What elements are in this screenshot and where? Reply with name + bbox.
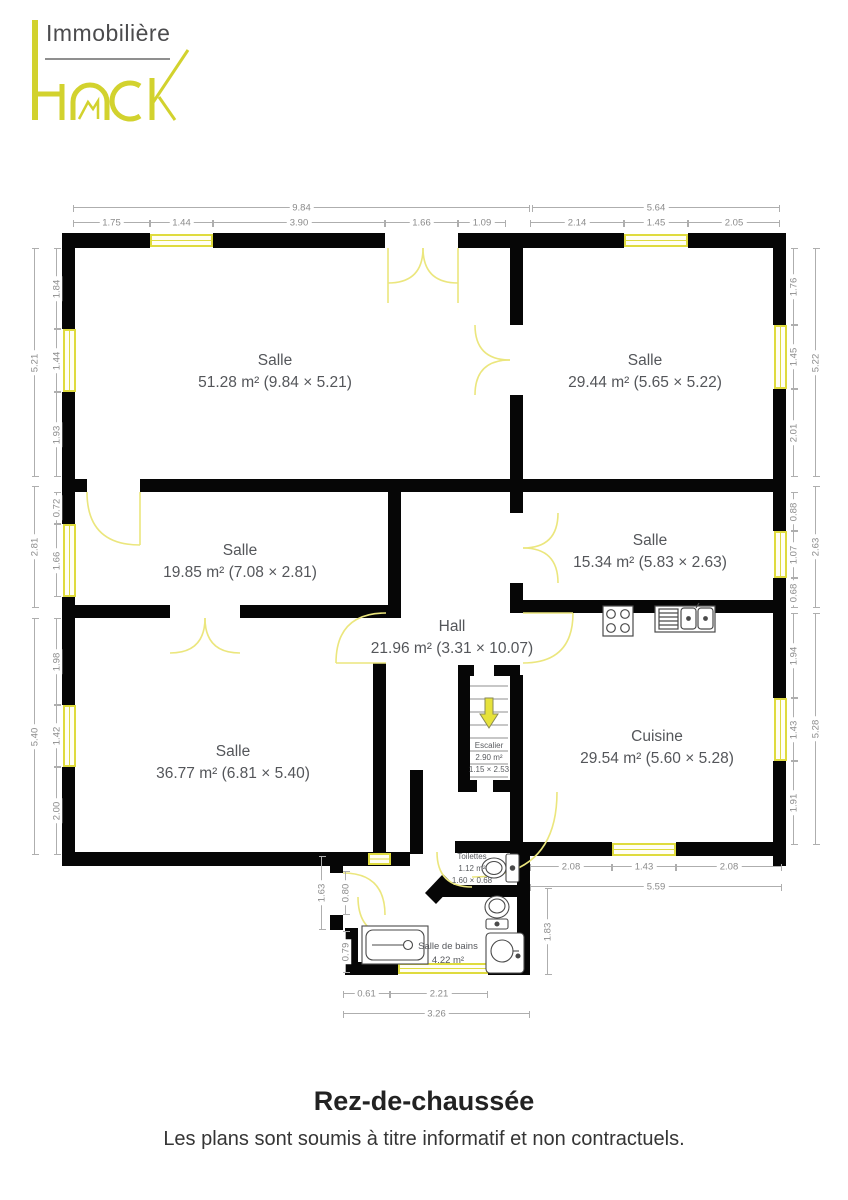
wall-segment: [62, 605, 170, 618]
room-size: 1.60 × 0.68: [452, 876, 492, 885]
window: [774, 698, 787, 761]
room-name: Salle: [216, 743, 250, 760]
dimension: 1.75: [73, 222, 150, 223]
room-label-escalier: Escalier 2.90 m² 1.15 × 2.53: [469, 740, 509, 776]
room-name: Salle: [633, 532, 667, 549]
wall-segment: [62, 767, 75, 866]
room-label-salle5: Salle 36.77 m² (6.81 × 5.40): [156, 741, 310, 786]
room-details: 15.34 m² (5.83 × 2.63): [573, 554, 727, 571]
dimension: 5.40: [34, 618, 35, 855]
wall-segment: [62, 597, 75, 618]
room-details: 19.85 m² (7.08 × 2.81): [163, 564, 317, 581]
window: [774, 531, 787, 578]
window: [624, 234, 688, 247]
wall-segment: [373, 663, 386, 853]
dimension: 1.45: [624, 222, 688, 223]
wall-segment: [388, 479, 401, 618]
dimension: 1.45: [793, 325, 794, 389]
room-label-salle2: Salle 29.44 m² (5.65 × 5.22): [568, 350, 722, 395]
toilet-icon: [485, 896, 509, 929]
dimension: 1.43: [793, 698, 794, 761]
dimension: 1.76: [793, 248, 794, 325]
wall-segment: [676, 842, 786, 856]
room-details: 29.44 m² (5.65 × 5.22): [568, 374, 722, 391]
dimension: 1.07: [793, 531, 794, 578]
dimension: 2.01: [793, 389, 794, 477]
wall-segment: [410, 770, 423, 854]
room-name: Salle: [258, 352, 292, 369]
dimension: 2.14: [530, 222, 624, 223]
dimension: 3.26: [343, 1013, 530, 1014]
dimension: 1.44: [150, 222, 213, 223]
dimension: 2.81: [34, 486, 35, 608]
room-label-cuisine: Cuisine 29.54 m² (5.60 × 5.28): [580, 726, 734, 771]
window: [368, 853, 391, 865]
room-area: 1.12 m²: [458, 864, 485, 873]
room-details: 21.96 m² (3.31 × 10.07): [371, 640, 533, 657]
wall-segment: [330, 852, 343, 873]
dimension: 2.21: [390, 993, 488, 994]
dimension: 1.43: [612, 866, 676, 867]
room-name: Toilettes: [457, 852, 486, 861]
room-name: Cuisine: [631, 728, 683, 745]
wall-segment: [510, 600, 786, 613]
dimension: 2.08: [530, 866, 612, 867]
dimension: 5.64: [532, 207, 780, 208]
window: [63, 329, 76, 392]
wall-segment: [773, 233, 786, 325]
plan-disclaimer: Les plans sont soumis à titre informatif…: [0, 1128, 848, 1151]
dimension: 5.21: [34, 248, 35, 477]
dimension: 9.84: [73, 207, 530, 208]
floor-plan-page: Immobilière: [0, 0, 848, 1200]
wall-segment: [773, 492, 786, 531]
dimension: 2.05: [688, 222, 780, 223]
dimension: 1.91: [793, 761, 794, 845]
plan-title: Rez-de-chaussée: [0, 1086, 848, 1117]
wall-segment: [62, 852, 410, 866]
wall-segment: [517, 852, 530, 975]
room-area: 4.22 m²: [432, 955, 464, 966]
dimension: 5.28: [815, 613, 816, 845]
wall-segment: [510, 675, 523, 852]
window: [63, 705, 76, 767]
dimension: 0.68: [793, 578, 794, 608]
wall-segment: [62, 618, 75, 705]
dimension: 2.08: [676, 866, 782, 867]
room-details: 51.28 m² (9.84 × 5.21): [198, 374, 352, 391]
dimension: 3.90: [213, 222, 385, 223]
wall-segment: [62, 233, 75, 329]
room-label-salle-de-bains: Salle de bains 4.22 m²: [418, 940, 478, 968]
wall-segment: [773, 389, 786, 492]
wall-segment: [62, 392, 75, 492]
wall-segment: [510, 583, 523, 613]
wall-segment: [773, 613, 786, 698]
room-label-toilettes: Toilettes 1.12 m² 1.60 × 0.68: [452, 851, 492, 887]
room-area: 2.90 m²: [475, 753, 502, 762]
wall-segment: [773, 578, 786, 613]
wall-segment: [510, 395, 523, 492]
room-label-salle3: Salle 19.85 m² (7.08 × 2.81): [163, 540, 317, 585]
room-label-salle4: Salle 15.34 m² (5.83 × 2.63): [573, 530, 727, 575]
dimension: 1.63: [321, 856, 322, 930]
room-name: Hall: [439, 618, 466, 635]
room-name: Salle de bains: [418, 941, 478, 952]
wall-segment: [510, 246, 523, 325]
window: [774, 325, 787, 389]
dimension: 5.59: [530, 886, 782, 887]
room-details: 36.77 m² (6.81 × 5.40): [156, 765, 310, 782]
dimension: 1.94: [793, 613, 794, 698]
room-name: Escalier: [475, 741, 503, 750]
dimension: 2.63: [815, 486, 816, 608]
wall-segment: [530, 233, 624, 248]
dimension: 1.93: [56, 392, 57, 477]
wall-segment: [62, 233, 150, 248]
dimension: 0.79: [345, 931, 346, 973]
wall-segment: [62, 492, 75, 524]
dimension: 0.61: [343, 993, 390, 994]
wall-segment: [213, 233, 385, 248]
brand-name-top: Immobilière: [46, 20, 170, 47]
dimension: 0.80: [345, 871, 346, 915]
dimension: 2.00: [56, 767, 57, 855]
wall-segment: [510, 479, 786, 492]
dimension: 1.09: [458, 222, 506, 223]
dimension: 1.66: [385, 222, 458, 223]
room-size: 1.15 × 2.53: [469, 765, 509, 774]
window: [63, 524, 76, 597]
dimension: 1.84: [56, 248, 57, 329]
dimension: 1.83: [547, 888, 548, 975]
dimension: 0.72: [56, 492, 57, 524]
wall-segment: [140, 479, 510, 492]
room-details: 29.54 m² (5.60 × 5.28): [580, 750, 734, 767]
stairs-arrow-icon: [480, 698, 498, 728]
window: [150, 234, 213, 247]
wall-segment: [510, 492, 523, 513]
dimension: 5.22: [815, 248, 816, 477]
room-name: Salle: [223, 542, 257, 559]
wall-segment: [330, 915, 343, 930]
dimension: 0.88: [793, 492, 794, 531]
brand-logo: Immobilière: [28, 12, 208, 132]
wall-segment: [773, 761, 786, 866]
room-name: Salle: [628, 352, 662, 369]
room-label-hall: Hall 21.96 m² (3.31 × 10.07): [371, 616, 533, 661]
dimension: 1.42: [56, 705, 57, 767]
room-label-salle1: Salle 51.28 m² (9.84 × 5.21): [198, 350, 352, 395]
wall-segment: [688, 233, 786, 248]
dimension: 1.44: [56, 329, 57, 392]
brand-rule: [45, 58, 170, 60]
dimension: 1.98: [56, 618, 57, 705]
window: [612, 843, 676, 856]
dimension: 1.66: [56, 524, 57, 597]
